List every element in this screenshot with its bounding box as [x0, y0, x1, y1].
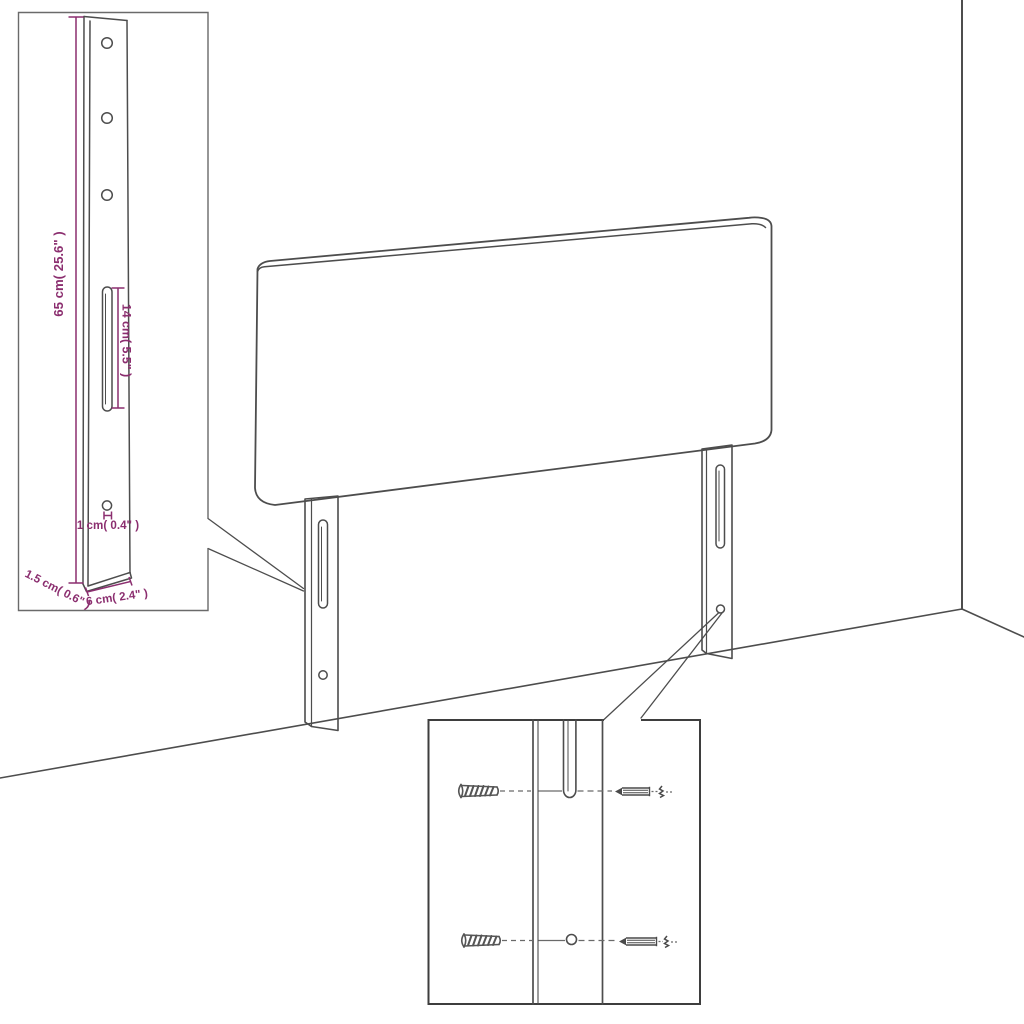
detail-hole-2 [102, 113, 113, 124]
mounting-slot [564, 720, 576, 798]
screw-head-squiggle [665, 936, 669, 948]
callout-line [208, 519, 304, 589]
plug-collar-back [461, 785, 463, 798]
mounting-hole [717, 605, 725, 613]
headboard-panel [255, 217, 772, 505]
detail-leg-top [84, 17, 127, 21]
callout-line [604, 613, 719, 720]
right-callout-lines [604, 613, 722, 720]
mounting-hole [319, 671, 327, 679]
leg-detail-inset: 65 cm( 25.6" ) 14 cm( 5.5" ) 1 cm( 0.4" … [19, 13, 209, 612]
hardware-inset [429, 720, 701, 1004]
detail-hole-3 [102, 190, 113, 201]
plug-collar-back [464, 934, 466, 947]
left-callout-lines [208, 519, 304, 592]
headboard-top-seam [258, 224, 766, 272]
detail-slot [103, 287, 113, 411]
detail-leg-left-inner [88, 21, 90, 586]
screw-icon [619, 936, 677, 948]
detail-leg-foot [83, 573, 132, 592]
plug-collar [459, 785, 461, 798]
plug-collar [462, 934, 464, 947]
screw-head-squiggle [660, 786, 664, 798]
dimension-label-slot-length: 14 cm( 5.5" ) [120, 304, 134, 377]
mounting-slot [319, 520, 328, 608]
screw-tip [619, 938, 626, 946]
callout-line [208, 549, 304, 592]
headboard-left-leg [305, 496, 338, 731]
detail-leg-left-outer [83, 17, 84, 585]
screw-tip [615, 788, 622, 796]
hardware-leg-strip [533, 720, 603, 1004]
plug-end [497, 787, 498, 795]
mounting-slot [716, 465, 725, 548]
detail-leg-right [127, 21, 130, 573]
wall-plug-icon [459, 785, 499, 798]
plug-end [499, 937, 500, 945]
floor-line-right [962, 609, 1024, 637]
dimension-label-hole-size: 1 cm( 0.4" ) [77, 519, 139, 532]
dimension-label-leg-height: 65 cm( 25.6" ) [51, 231, 66, 316]
mounting-hole [567, 935, 577, 945]
room-background [0, 0, 1024, 778]
wall-plug-icon [462, 934, 501, 947]
detail-hole-1 [102, 38, 113, 49]
diagram-canvas: 65 cm( 25.6" ) 14 cm( 5.5" ) 1 cm( 0.4" … [0, 0, 1024, 1024]
headboard-right-leg [702, 445, 732, 659]
screw-icon [615, 786, 672, 798]
callout-line [641, 613, 722, 718]
detail-hole-4 [102, 501, 111, 510]
diagram-page: 65 cm( 25.6" ) 14 cm( 5.5" ) 1 cm( 0.4" … [0, 0, 1024, 1024]
floor-line-left [0, 609, 962, 778]
plug-ribs [465, 786, 494, 796]
connector-lines [500, 791, 616, 941]
